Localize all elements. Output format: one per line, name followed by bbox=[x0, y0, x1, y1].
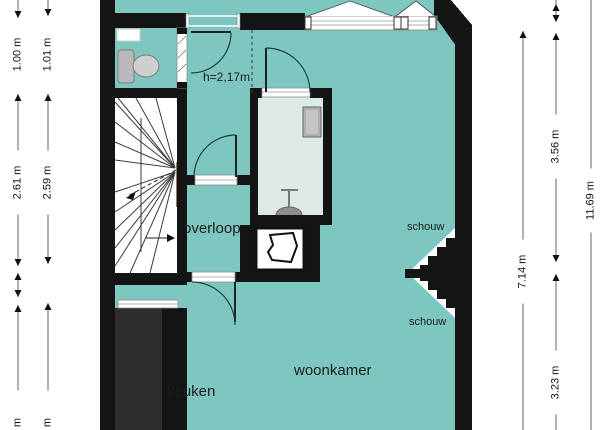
dim-left-outer-top: 1.00 m bbox=[12, 23, 25, 87]
top-wall-left bbox=[110, 13, 186, 28]
dim-right-total: 11.69 m bbox=[585, 169, 598, 233]
left-wall bbox=[100, 0, 115, 430]
dim-right-mid-bottom: 3.23 m bbox=[550, 351, 563, 415]
kitchen-nook-window bbox=[118, 300, 178, 308]
void-area bbox=[115, 308, 162, 430]
kitchen-west-wall bbox=[162, 308, 187, 430]
top-wall-mid bbox=[240, 13, 305, 30]
wetroom-bottom-wall bbox=[250, 215, 332, 225]
room-label-woonkamer: woonkamer bbox=[294, 362, 372, 379]
dim-left-outer-mid: 2.61 m bbox=[12, 151, 25, 215]
dim-left-inner-bottom: m bbox=[42, 391, 55, 430]
wetroom-window bbox=[262, 88, 310, 97]
landing-door-opening bbox=[195, 175, 237, 185]
wet-room bbox=[258, 97, 323, 223]
dim-left-inner-mid: 2.59 m bbox=[42, 151, 55, 215]
wc-bottom-wall bbox=[100, 88, 187, 98]
stairs-side-wall bbox=[177, 98, 187, 273]
wetroom-west-wall bbox=[250, 90, 258, 225]
right-wall bbox=[455, 25, 472, 430]
label-schouw-bottom: schouw bbox=[409, 316, 446, 328]
label-schouw-top: schouw bbox=[407, 221, 444, 233]
dim-left-inner-top: 1.01 m bbox=[42, 23, 55, 87]
kitchen-door-opening bbox=[192, 272, 235, 282]
dim-right-inner: 7.14 m bbox=[517, 240, 530, 304]
shelf bbox=[117, 29, 140, 41]
floorplan-page: overloop keuken woonkamer schouw schouw … bbox=[0, 0, 608, 430]
dim-left-outer-bottom: m bbox=[12, 391, 25, 430]
flue-box bbox=[256, 228, 304, 270]
wetroom-east-wall bbox=[323, 90, 332, 225]
room-label-keuken: keuken bbox=[167, 383, 215, 400]
kitchen-north-wall bbox=[100, 273, 187, 285]
dim-right-mid-top: 3.56 m bbox=[550, 115, 563, 179]
staircase bbox=[115, 98, 182, 273]
label-ceiling-height: h=2,17m bbox=[203, 70, 250, 84]
flue-duct-icon bbox=[268, 233, 297, 262]
room-label-overloop: overloop bbox=[183, 220, 241, 237]
glass-partition bbox=[177, 28, 187, 88]
